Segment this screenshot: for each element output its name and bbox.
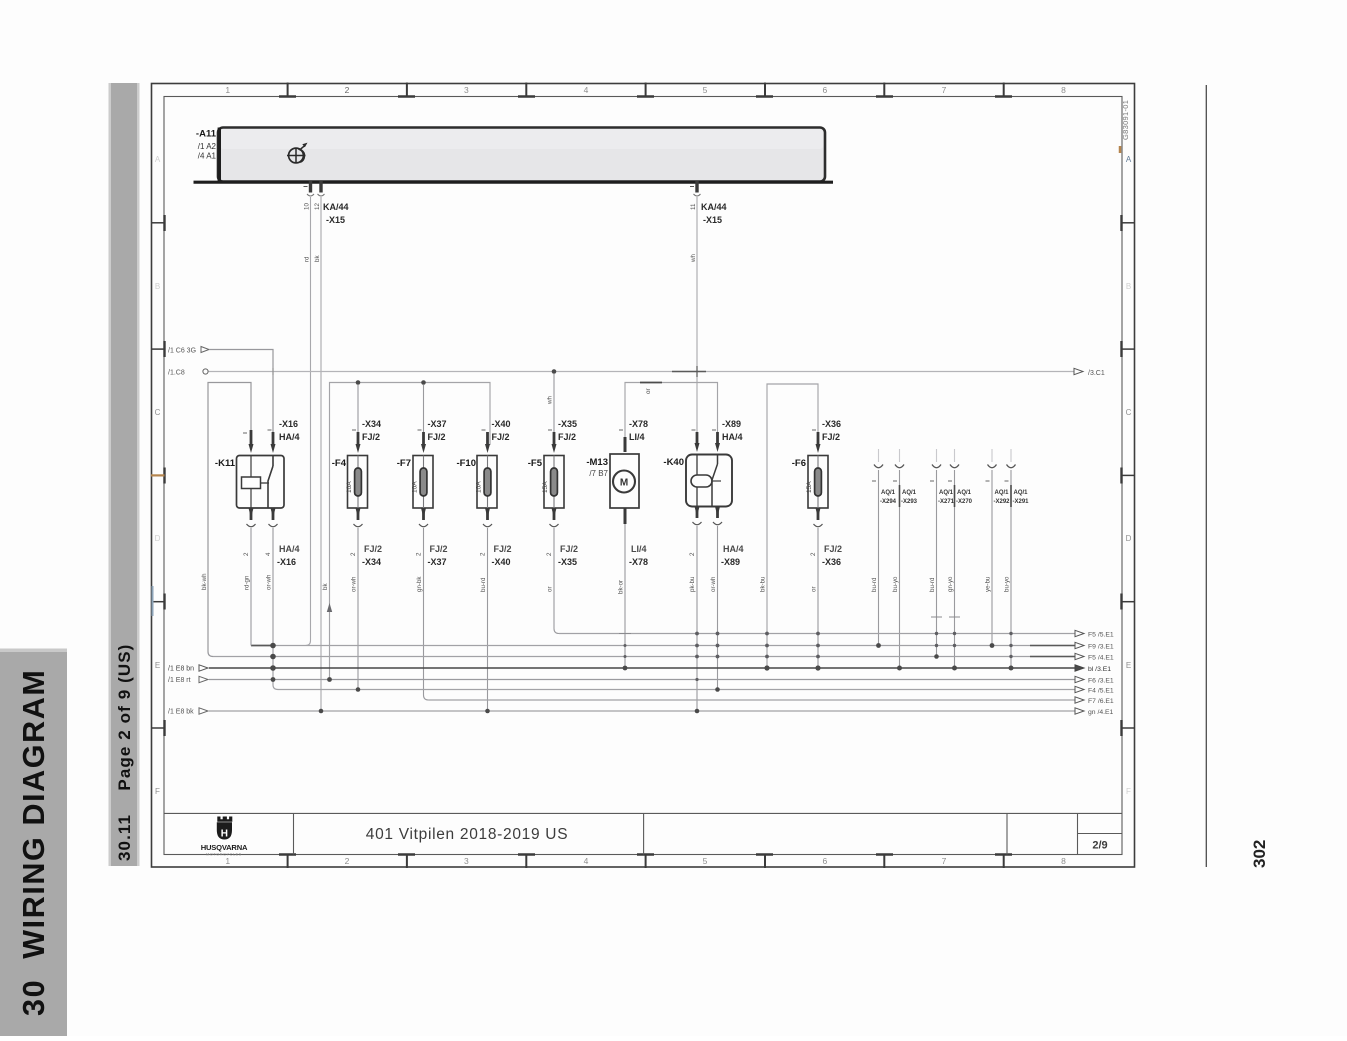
svg-text:/3.C1: /3.C1 [1088,370,1105,377]
svg-text:30 WIRING DIAGRAM: 30 WIRING DIAGRAM [17,669,51,1016]
svg-text:F5 /5.E1: F5 /5.E1 [1088,632,1114,639]
svg-text:FJ/2: FJ/2 [428,432,446,442]
svg-text:8: 8 [1061,856,1066,866]
svg-text:LI/4: LI/4 [629,432,645,442]
svg-text:rd: rd [304,256,311,262]
svg-text:F5 /4.E1: F5 /4.E1 [1088,655,1114,662]
svg-text:/4 A1: /4 A1 [198,152,217,161]
svg-text:-X37: -X37 [428,419,447,429]
svg-text:-F10: -F10 [456,458,476,469]
svg-text:-X15: -X15 [703,215,722,225]
svg-text:gn /4.E1: gn /4.E1 [1088,709,1114,716]
svg-text:C: C [1126,408,1132,417]
svg-text:bu-yo: bu-yo [1004,576,1011,592]
svg-text:401 Vitpilen 2018-2019 US: 401 Vitpilen 2018-2019 US [366,826,569,843]
svg-text:wh: wh [547,396,554,405]
svg-text:F4 /5.E1: F4 /5.E1 [1088,688,1114,695]
svg-text:/1 E8 bk: /1 E8 bk [168,709,194,716]
svg-text:FJ/2: FJ/2 [362,432,380,442]
svg-text:pk-bu: pk-bu [689,576,696,592]
svg-text:-X78: -X78 [629,419,648,429]
svg-text:AQ/1: AQ/1 [881,490,896,496]
svg-text:bu-rd: bu-rd [871,577,878,592]
svg-text:2: 2 [416,552,423,556]
svg-text:/1 E8 rt: /1 E8 rt [168,677,191,684]
svg-text:-X36: -X36 [822,557,841,567]
svg-text:-F6: -F6 [792,458,806,469]
svg-text:15A: 15A [806,481,813,493]
svg-text:-X271: -X271 [938,499,955,505]
svg-text:FJ/2: FJ/2 [494,544,512,554]
svg-text:D: D [1126,534,1132,543]
svg-text:gn-yo: gn-yo [947,576,954,592]
svg-text:or: or [645,388,652,394]
svg-text:-X40: -X40 [492,419,511,429]
svg-text:HA/4: HA/4 [722,432,743,442]
svg-text:A: A [155,155,161,164]
svg-text:-A11: -A11 [196,129,217,140]
svg-text:10: 10 [304,203,311,210]
svg-text:302: 302 [1250,840,1269,868]
svg-text:or-wh: or-wh [351,576,358,592]
svg-text:AQ/1: AQ/1 [902,490,917,496]
svg-text:C: C [155,408,161,417]
svg-text:ye-bu: ye-bu [985,576,992,592]
svg-text:or-wh: or-wh [266,574,273,590]
svg-text:G83091-01: G83091-01 [1121,100,1130,140]
svg-text:-X35: -X35 [558,419,577,429]
svg-text:FJ/2: FJ/2 [560,544,578,554]
svg-text:2: 2 [243,552,250,556]
svg-text:-X37: -X37 [428,557,447,567]
svg-text:HA/4: HA/4 [279,544,300,554]
svg-text:E: E [155,661,160,670]
svg-text:bk-wh: bk-wh [201,573,208,590]
svg-text:MOTORCYCLES: MOTORCYCLES [206,853,242,857]
svg-text:M: M [620,478,628,489]
svg-text:/1 A2: /1 A2 [198,142,217,151]
svg-text:or-wh: or-wh [710,576,717,592]
svg-text:-X34: -X34 [362,557,381,567]
svg-text:-X89: -X89 [721,557,740,567]
svg-text:-X291: -X291 [1013,499,1030,505]
svg-text:or: or [811,586,818,592]
svg-text:-X16: -X16 [279,419,298,429]
svg-text:-X15: -X15 [326,215,345,225]
svg-text:11: 11 [690,203,697,210]
svg-text:3: 3 [464,85,469,95]
svg-text:bu-rd: bu-rd [480,577,487,592]
svg-text:bu-rd: bu-rd [929,577,936,592]
svg-text:KA/44: KA/44 [323,202,349,212]
svg-text:AQ/1: AQ/1 [957,490,972,496]
svg-text:B: B [155,282,160,291]
svg-text:FJ/2: FJ/2 [492,432,510,442]
svg-text:F7 /6.E1: F7 /6.E1 [1088,698,1114,705]
svg-text:-X35: -X35 [558,557,577,567]
svg-text:2: 2 [546,552,553,556]
svg-text:-X78: -X78 [629,557,648,567]
svg-text:F: F [155,787,160,796]
svg-text:2: 2 [689,552,696,556]
svg-text:/7 B7: /7 B7 [589,469,608,478]
svg-text:E: E [1126,661,1131,670]
svg-text:1: 1 [225,85,230,95]
svg-text:LI/4: LI/4 [631,544,647,554]
svg-text:AQ/1: AQ/1 [939,490,954,496]
svg-text:-X40: -X40 [492,557,511,567]
svg-text:12: 12 [314,203,321,210]
svg-text:6: 6 [823,856,828,866]
svg-text:-X89: -X89 [722,419,741,429]
svg-text:HUSQVARNA: HUSQVARNA [201,843,248,852]
svg-text:4: 4 [265,552,272,556]
svg-text:KA/44: KA/44 [701,202,727,212]
svg-text:10A: 10A [476,481,483,493]
svg-text:2: 2 [810,552,817,556]
svg-text:2: 2 [480,552,487,556]
svg-text:2: 2 [350,552,357,556]
svg-text:wh: wh [690,254,697,263]
svg-text:/1 E8 bn: /1 E8 bn [168,666,194,673]
svg-text:HA/4: HA/4 [723,544,744,554]
svg-text:F: F [1126,787,1131,796]
svg-text:bu-yo: bu-yo [892,576,899,592]
svg-text:-K11: -K11 [215,458,236,469]
svg-text:8: 8 [1061,85,1066,95]
svg-text:FJ/2: FJ/2 [558,432,576,442]
svg-text:5: 5 [703,85,708,95]
svg-text:-X36: -X36 [822,419,841,429]
svg-text:AQ/1: AQ/1 [1014,490,1029,496]
svg-text:FJ/2: FJ/2 [430,544,448,554]
svg-text:bk: bk [314,255,321,262]
svg-text:15A: 15A [542,481,549,493]
svg-text:-F4: -F4 [332,458,347,469]
svg-text:-X294: -X294 [880,499,897,505]
svg-text:D: D [155,534,161,543]
svg-text:4: 4 [584,856,589,866]
svg-text:10A: 10A [412,481,419,493]
svg-text:bk-bu: bk-bu [760,576,767,592]
svg-text:-M13: -M13 [586,457,608,468]
svg-text:-X292: -X292 [994,499,1011,505]
svg-text:6: 6 [823,85,828,95]
svg-text:3: 3 [464,856,469,866]
svg-text:2: 2 [345,856,350,866]
svg-text:bl /3.E1: bl /3.E1 [1088,666,1111,673]
svg-text:F9 /3.E1: F9 /3.E1 [1088,644,1114,651]
svg-text:FJ/2: FJ/2 [364,544,382,554]
svg-text:FJ/2: FJ/2 [824,544,842,554]
svg-text:HA/4: HA/4 [279,432,300,442]
svg-text:4: 4 [584,85,589,95]
svg-text:gn-bk: gn-bk [416,576,423,592]
svg-text:10A: 10A [346,481,353,493]
svg-text:2/9: 2/9 [1092,840,1107,852]
svg-text:F6 /3.E1: F6 /3.E1 [1088,678,1114,685]
svg-text:bk-or: bk-or [618,580,625,594]
svg-text:7: 7 [942,856,947,866]
svg-text:5: 5 [703,856,708,866]
svg-text:FJ/2: FJ/2 [822,432,840,442]
svg-text:7: 7 [942,85,947,95]
svg-text:/1 C6 3G: /1 C6 3G [168,348,196,355]
svg-text:1: 1 [225,856,230,866]
svg-text:-F5: -F5 [528,458,543,469]
svg-text:-X270: -X270 [956,499,973,505]
svg-text:rd-gn: rd-gn [244,575,251,590]
svg-text:30.11 Page 2 of 9 (US): 30.11 Page 2 of 9 (US) [115,644,134,861]
svg-text:H: H [221,829,228,840]
svg-text:AQ/1: AQ/1 [995,490,1010,496]
svg-text:B: B [1126,282,1131,291]
svg-text:2: 2 [345,85,350,95]
svg-text:A: A [1126,155,1132,164]
svg-text:-F7: -F7 [397,458,411,469]
svg-text:or: or [547,586,554,592]
svg-text:-X34: -X34 [362,419,381,429]
svg-text:/1.C8: /1.C8 [168,370,185,377]
svg-text:-X293: -X293 [901,499,918,505]
svg-text:-X16: -X16 [277,557,296,567]
svg-text:-K40: -K40 [663,457,684,468]
svg-text:bk: bk [322,583,329,590]
